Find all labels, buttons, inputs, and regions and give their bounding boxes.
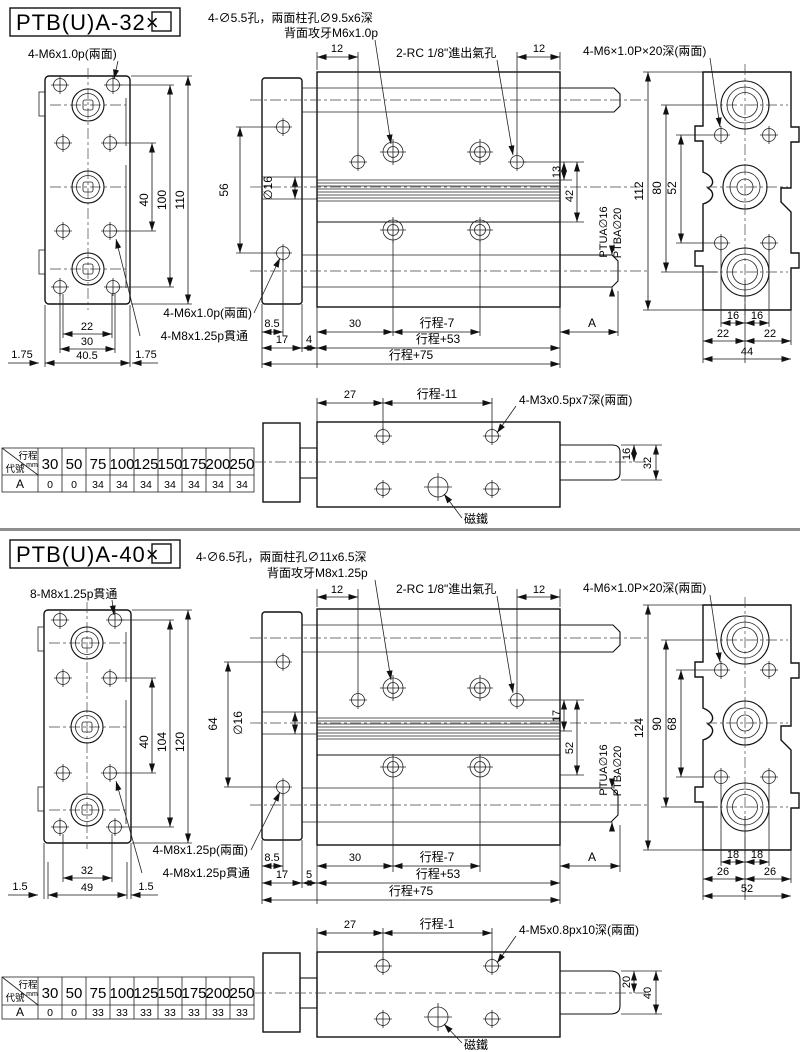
- bottom-dim-stroke: 行程-11: [417, 386, 458, 401]
- end-dim-b1r: 18: [751, 849, 763, 861]
- table-col: 75: [90, 985, 107, 1002]
- table-val: 34: [164, 479, 176, 491]
- side-dim-12-right: 12: [533, 584, 545, 596]
- drill-note-line2: 背面攻牙M6x1.0p: [284, 26, 378, 40]
- front-dim-b1: 32: [81, 865, 93, 877]
- side-dim-r1c: 行程-7: [420, 849, 455, 864]
- drill-note-line1: 4-∅5.5孔，兩面柱孔∅9.5x6深: [208, 10, 373, 25]
- side-dim-r1a: 8.5: [264, 318, 279, 330]
- front-dim-v1: 40: [137, 735, 151, 749]
- through-thread-label: 4-M8x1.25p貫通: [163, 866, 250, 880]
- front-dim-b2: 49: [81, 882, 93, 894]
- side-dim-d2: 42: [564, 190, 576, 202]
- bottom-dim-rod-half: 16: [621, 448, 633, 460]
- end-dim-b3: 52: [741, 883, 753, 895]
- table-val: 33: [188, 1007, 200, 1019]
- end-dim-height: 112: [632, 181, 646, 200]
- through-thread-label: 4-M8x1.25p貫通: [161, 329, 248, 343]
- end-dim-b3: 44: [741, 346, 753, 358]
- bottom-dim-rod-half: 20: [621, 976, 633, 988]
- side-dim-r1b: 30: [349, 852, 361, 864]
- table-col: 75: [90, 456, 107, 473]
- drawing-sheet: PTB(U)A-32× 4-∅5.5孔，兩面柱孔∅9.5x6深 背面攻牙M6x1…: [0, 0, 800, 1052]
- front-dim-side-left: 1.5: [12, 881, 27, 893]
- table-col: 125: [133, 985, 158, 1002]
- table-val: 34: [212, 479, 224, 491]
- section-divider: [0, 528, 800, 531]
- end-dim-b1r: 16: [751, 310, 763, 322]
- end-view: 112 80 52 16 16 22 22 44: [632, 64, 799, 363]
- model-title: PTB(U)A-40×: [16, 542, 160, 567]
- table-row-label: A: [16, 477, 24, 491]
- end-thread-label: 4-M6×1.0P×20深(兩面): [583, 44, 706, 58]
- plate-thread-label: 4-M6x1.0p(兩面): [163, 306, 252, 320]
- rod-label-ptua: PTUA∅16: [598, 744, 610, 795]
- table-diag-top: 行程: [18, 450, 38, 462]
- side-dim-r1d: A: [588, 850, 596, 864]
- rod-label-ptba: PTBA∅20: [612, 208, 624, 259]
- table-col: 150: [157, 456, 182, 473]
- side-dim-12-right: 12: [533, 43, 545, 55]
- table-val: 33: [212, 1007, 224, 1019]
- table-col: 30: [42, 985, 59, 1002]
- side-dim-r1c: 行程-7: [420, 315, 455, 330]
- table-val: 34: [236, 479, 248, 491]
- end-dim-b2r: 26: [764, 866, 776, 878]
- side-dim-r2b: 5: [306, 869, 312, 881]
- table-col: 250: [229, 985, 254, 1002]
- table-col: 125: [133, 456, 158, 473]
- side-dim-rod-dia: ∅16: [231, 711, 245, 735]
- side-dim-d2: 52: [564, 742, 576, 754]
- side-dim-r2c: 行程+53: [416, 866, 461, 881]
- front-top-thread-label: 8-M8x1.25p貫通: [30, 587, 117, 601]
- front-dim-side-right: 1.5: [138, 881, 153, 893]
- table-col: 250: [229, 456, 254, 473]
- table-diag-top: 行程: [18, 979, 38, 991]
- bottom-dim-27: 27: [344, 389, 356, 401]
- side-dim-r2b: 4: [306, 334, 312, 346]
- side-dim-d1: 17: [551, 710, 563, 722]
- table-val: 33: [92, 1007, 104, 1019]
- bottom-dim-stroke: 行程-1: [420, 916, 455, 931]
- end-dim-c1: 90: [650, 717, 664, 731]
- side-dim-12-left: 12: [331, 43, 343, 55]
- table-val: 33: [140, 1007, 152, 1019]
- front-dim-b3: 40.5: [76, 350, 97, 362]
- magnet-label: 磁鐵: [464, 511, 488, 526]
- table-col: 50: [66, 985, 83, 1002]
- front-dim-side-left: 1.75: [11, 349, 32, 361]
- table-col: 200: [205, 985, 230, 1002]
- side-dim-d1: 13: [551, 166, 563, 178]
- table-val: 0: [71, 479, 77, 491]
- air-port-label: 2-RC 1/8"進出氣孔: [396, 582, 496, 596]
- front-dim-side-right: 1.75: [135, 349, 156, 361]
- drill-notes: 4-∅5.5孔，兩面柱孔∅9.5x6深 背面攻牙M6x1.0p: [208, 10, 391, 144]
- side-view: 12 12 2-RC 1/8"進出氣孔 4-M6×1.0P×20深(兩面) 56…: [116, 43, 720, 368]
- stroke-table: 行程 mm 代號 30 50 75 100 125 150 175 200 25…: [2, 448, 255, 492]
- table-val: 33: [164, 1007, 176, 1019]
- side-dim-span: 56: [217, 183, 231, 197]
- side-dim-span: 64: [206, 717, 220, 731]
- front-dim-v3: 110: [173, 190, 187, 209]
- front-dim-v1: 40: [137, 193, 151, 207]
- table-col: 175: [181, 456, 206, 473]
- table-diag-bottom: 代號: [5, 463, 25, 475]
- end-dim-b1l: 16: [727, 310, 739, 322]
- air-port-label: 2-RC 1/8"進出氣孔: [396, 46, 496, 60]
- front-dim-v2: 100: [155, 190, 169, 210]
- table-val: 0: [47, 1007, 53, 1019]
- end-dim-c2: 68: [665, 717, 679, 731]
- table-val: 33: [116, 1007, 128, 1019]
- side-dim-r1d: A: [588, 316, 596, 330]
- bottom-thread-label: 4-M3x0.5px7深(兩面): [519, 393, 632, 407]
- side-dim-r1a: 8.5: [264, 852, 279, 864]
- front-dim-v3: 120: [173, 732, 187, 752]
- table-row-label: A: [16, 1005, 24, 1019]
- side-dim-r2a: 17: [276, 869, 288, 881]
- side-dim-r3: 行程+75: [389, 347, 434, 362]
- end-dim-c1: 80: [650, 181, 664, 195]
- table-val: 34: [188, 479, 200, 491]
- table-col: 200: [205, 456, 230, 473]
- table-val: 34: [140, 479, 152, 491]
- section-ptba40: PTB(U)A-40× 4-∅6.5孔，兩面柱孔∅11x6.5深 背面攻牙M8x…: [0, 532, 800, 1052]
- side-dim-12-left: 12: [331, 584, 343, 596]
- front-dim-b2: 30: [81, 336, 93, 348]
- rod-label-ptba: PTBA∅20: [612, 746, 624, 797]
- table-diag-bottom: 代號: [5, 992, 25, 1004]
- drill-notes: 4-∅6.5孔，兩面柱孔∅11x6.5深 背面攻牙M8x1.25p: [196, 549, 391, 680]
- end-dim-b2r: 22: [764, 328, 776, 340]
- side-view: 12 12 2-RC 1/8"進出氣孔 4-M6×1.0P×20深(兩面) 64…: [116, 581, 720, 904]
- model-title: PTB(U)A-32×: [16, 10, 160, 35]
- side-dim-r3: 行程+75: [389, 883, 434, 898]
- bottom-dim-rod-full: 40: [642, 987, 654, 999]
- front-top-thread-label: 4-M6x1.0p(兩面): [28, 47, 117, 61]
- title-block: PTB(U)A-40×: [10, 540, 180, 568]
- bottom-view: 27 行程-1 4-M5x0.8px10深(兩面) 磁鐵 20 40: [255, 916, 662, 1052]
- side-dim-r2c: 行程+53: [416, 331, 461, 346]
- stroke-table: 行程 mm 代號 30 50 75 100 125 150 175 200 25…: [2, 977, 255, 1019]
- side-dim-r2a: 17: [276, 334, 288, 346]
- table-col: 175: [181, 985, 206, 1002]
- table-val: 33: [236, 1007, 248, 1019]
- end-dim-b1l: 18: [727, 849, 739, 861]
- front-dim-b1: 22: [81, 321, 93, 333]
- table-col: 100: [109, 985, 134, 1002]
- rod-label-ptua: PTUA∅16: [598, 206, 610, 257]
- table-val: 0: [71, 1007, 77, 1019]
- end-dim-b2l: 26: [717, 866, 729, 878]
- table-val: 34: [92, 479, 104, 491]
- plate-thread-label: 4-M8x1.25p(兩面): [153, 843, 248, 857]
- table-col: 50: [66, 456, 83, 473]
- bottom-thread-label: 4-M5x0.8px10深(兩面): [519, 923, 639, 937]
- table-col: 150: [157, 985, 182, 1002]
- bottom-view: 27 行程-11 4-M3x0.5px7深(兩面) 磁鐵 16 32: [255, 386, 662, 526]
- table-val: 0: [47, 479, 53, 491]
- section-ptba32: PTB(U)A-32× 4-∅5.5孔，兩面柱孔∅9.5x6深 背面攻牙M6x1…: [0, 0, 800, 528]
- end-dim-height: 124: [632, 718, 646, 738]
- title-block: PTB(U)A-32×: [10, 8, 180, 36]
- drill-note-line1: 4-∅6.5孔，兩面柱孔∅11x6.5深: [196, 549, 367, 564]
- table-col: 100: [109, 456, 134, 473]
- end-dim-b2l: 22: [717, 328, 729, 340]
- side-dim-r1b: 30: [349, 318, 361, 330]
- drill-note-line2: 背面攻牙M8x1.25p: [267, 566, 368, 580]
- side-dim-rod-dia: ∅16: [261, 176, 275, 200]
- table-val: 34: [116, 479, 128, 491]
- table-diag-unit: mm: [26, 462, 38, 469]
- front-dim-v2: 104: [155, 732, 169, 752]
- table-col: 30: [42, 456, 59, 473]
- magnet-label: 磁鐵: [464, 1037, 488, 1052]
- table-diag-unit: mm: [26, 991, 38, 998]
- end-thread-label: 4-M6×1.0P×20深(兩面): [583, 581, 706, 595]
- bottom-dim-rod-full: 32: [642, 457, 654, 469]
- bottom-dim-27: 27: [344, 919, 356, 931]
- end-dim-c2: 52: [665, 181, 679, 195]
- end-view: 124 90 68 18 18 26 26 52: [632, 597, 799, 900]
